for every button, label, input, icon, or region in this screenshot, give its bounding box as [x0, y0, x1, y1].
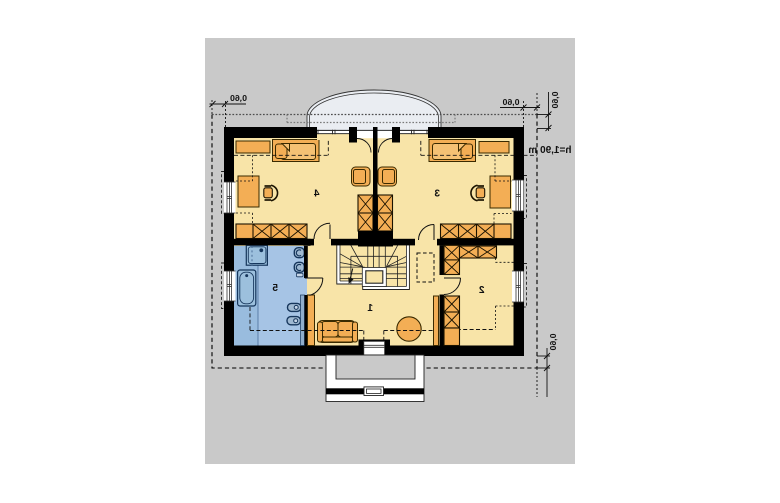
svg-text:3: 3 [434, 189, 440, 200]
svg-text:0,60: 0,60 [502, 97, 519, 107]
svg-text:0,60: 0,60 [550, 92, 560, 109]
svg-text:4: 4 [314, 189, 320, 200]
svg-text:5: 5 [272, 283, 278, 294]
svg-text:2: 2 [479, 285, 485, 296]
svg-text:0,60: 0,60 [230, 93, 247, 103]
svg-text:0,60: 0,60 [548, 334, 558, 351]
svg-text:h=1,90 m: h=1,90 m [528, 145, 571, 156]
svg-text:1: 1 [367, 303, 373, 314]
